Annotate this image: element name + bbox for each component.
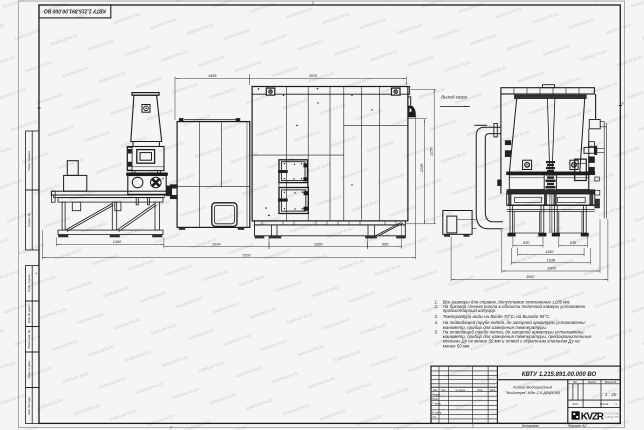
svg-text:Т. контр.: Т. контр. bbox=[432, 404, 441, 406]
svg-text:2034: 2034 bbox=[211, 242, 220, 246]
svg-text:3025: 3025 bbox=[309, 74, 318, 78]
svg-text:5.: 5. bbox=[435, 330, 439, 335]
svg-text:2.: 2. bbox=[434, 304, 439, 309]
svg-text:2: 2 bbox=[170, 426, 172, 430]
svg-text:630: 630 bbox=[570, 241, 577, 245]
svg-text:1360: 1360 bbox=[545, 250, 554, 254]
svg-text:Подп.: Подп. bbox=[477, 390, 483, 392]
svg-text:630: 630 bbox=[523, 241, 530, 245]
svg-text:Изм: Изм bbox=[433, 390, 438, 392]
svg-text:КВТУ 1.215.891.00.000 ВО: КВТУ 1.215.891.00.000 ВО bbox=[522, 371, 597, 378]
svg-text:Утв.: Утв. bbox=[432, 417, 437, 419]
svg-text:Справ. №: Справ. № bbox=[27, 212, 31, 226]
svg-text:Температура воды на Входе 70°С: Температура воды на Входе 70°С, на Выход… bbox=[443, 314, 551, 319]
svg-text:пробоотборный штуцер.: пробоотборный штуцер. bbox=[443, 307, 497, 313]
svg-text:Подп. и дата: Подп. и дата bbox=[27, 274, 31, 292]
svg-text:1 : 20: 1 : 20 bbox=[605, 392, 617, 397]
svg-text:КОТЕЛЬНЫЙ: КОТЕЛЬНЫЙ bbox=[605, 412, 621, 416]
svg-text:№ докум.: № докум. bbox=[455, 389, 465, 392]
svg-text:Масса: Масса bbox=[588, 380, 596, 384]
svg-text:8: 8 bbox=[622, 102, 624, 106]
svg-text:Дата: Дата bbox=[490, 390, 496, 392]
svg-text:ЗАВОД РЗР: ЗАВОД РЗР bbox=[605, 415, 620, 419]
svg-text:Лист: Лист bbox=[572, 402, 579, 406]
svg-text:1538: 1538 bbox=[547, 258, 556, 262]
svg-text:1906: 1906 bbox=[547, 267, 556, 271]
svg-text:менее 50 мм.: менее 50 мм. bbox=[443, 343, 471, 348]
svg-text:Копировал: Копировал bbox=[522, 424, 539, 428]
svg-text:Инв. № дубл.: Инв. № дубл. bbox=[27, 304, 31, 323]
svg-text:Н. контр.: Н. контр. bbox=[432, 413, 442, 415]
svg-text:2: 2 bbox=[312, 1, 314, 5]
svg-text:Перв. примен.: Перв. примен. bbox=[27, 150, 31, 170]
svg-text:Разраб.: Разраб. bbox=[432, 394, 441, 396]
svg-text:1460: 1460 bbox=[113, 240, 122, 244]
svg-text:KVZR: KVZR bbox=[581, 411, 604, 422]
svg-text:Инв. № подл.: Инв. № подл. bbox=[27, 396, 31, 415]
svg-text:3052: 3052 bbox=[526, 275, 535, 279]
svg-text:Пров.: Пров. bbox=[432, 399, 438, 401]
svg-text:"КыАтерм"-КВн-2,5-ДВ(ВЛИ): "КыАтерм"-КВн-2,5-ДВ(ВЛИ) bbox=[505, 390, 560, 395]
svg-text:2250: 2250 bbox=[430, 146, 434, 156]
svg-text:4.: 4. bbox=[435, 320, 439, 325]
svg-text:3.: 3. bbox=[435, 314, 439, 319]
svg-text:Взам. инв. №: Взам. инв. № bbox=[27, 329, 31, 348]
svg-text:КВТУ 1.215.891.00.000 ВО: КВТУ 1.215.891.00.000 ВО bbox=[44, 7, 106, 13]
svg-text:685: 685 bbox=[382, 242, 389, 246]
svg-text:7200: 7200 bbox=[242, 253, 251, 257]
svg-text:2235: 2235 bbox=[420, 163, 424, 173]
svg-text:Подп. и дата: Подп. и дата bbox=[27, 361, 31, 379]
svg-text:Формат А2: Формат А2 bbox=[568, 424, 587, 428]
svg-text:1485: 1485 bbox=[208, 74, 217, 78]
svg-text:Листов: Листов bbox=[600, 402, 609, 406]
svg-text:1950: 1950 bbox=[314, 242, 323, 246]
svg-text:Лит.: Лит. bbox=[573, 380, 578, 384]
svg-text:Выход газов: Выход газов bbox=[441, 95, 467, 100]
svg-text:Масштаб: Масштаб bbox=[605, 380, 617, 384]
